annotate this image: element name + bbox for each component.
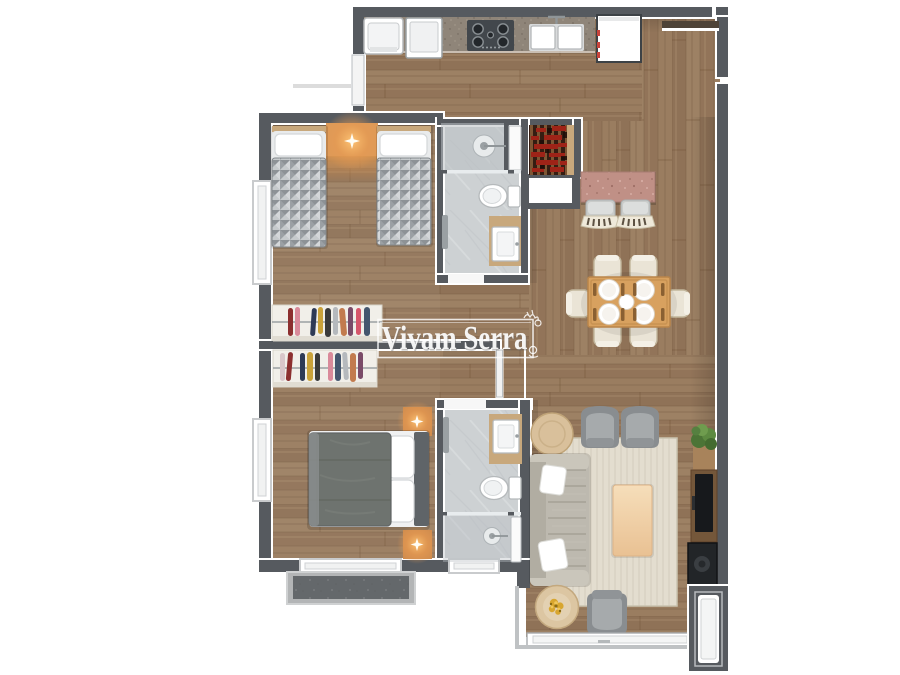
svg-text:Vivam Serra: Vivam Serra bbox=[382, 320, 528, 357]
